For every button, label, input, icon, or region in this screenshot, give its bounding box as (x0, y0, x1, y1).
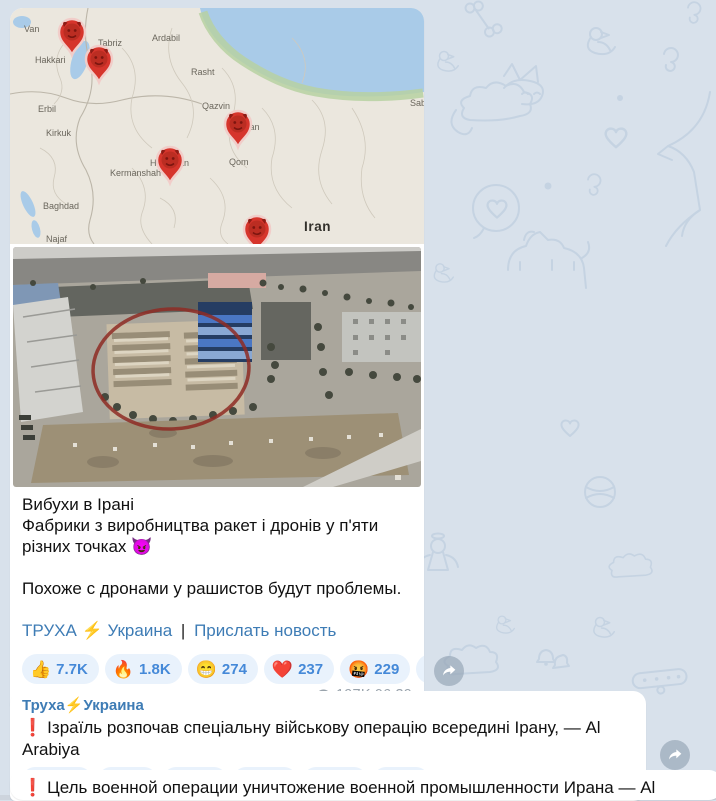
svg-text:Baghdad: Baghdad (43, 201, 79, 211)
doodle-collar (632, 668, 688, 696)
svg-text:Kirkuk: Kirkuk (46, 128, 72, 138)
svg-text:Qom: Qom (229, 157, 249, 167)
doodle-swirl (588, 174, 601, 195)
fire-icon: 🔥 (113, 661, 134, 678)
grin-icon: 😁 (196, 661, 217, 678)
share-button[interactable] (434, 656, 464, 686)
reaction-grin[interactable]: 😁 274 (188, 654, 258, 684)
doodle-swirl (688, 2, 701, 23)
message-line: Фабрики з виробництва ракет і дронів у п… (22, 515, 412, 557)
message-1-text: Вибухи в Ірані Фабрики з виробництва рак… (10, 487, 424, 647)
sender-name[interactable]: Труха⚡Украина (22, 696, 634, 715)
svg-text:Kermanshah: Kermanshah (110, 168, 161, 178)
reactions-row: 👍 7.7K 🔥 1.8K 😁 274 ❤️ 237 🤬 229 😢 28 (22, 654, 412, 684)
share-button[interactable] (660, 740, 690, 770)
thumbs-up-icon: 👍 (30, 661, 51, 678)
blue-warehouse (198, 302, 252, 362)
svg-text:Van: Van (24, 24, 39, 34)
reaction-count: 7.7K (56, 661, 88, 678)
svg-text:Rasht: Rasht (191, 67, 215, 77)
channel-link[interactable]: ТРУХА ⚡ Украина (22, 621, 172, 640)
reaction-count: 229 (374, 661, 399, 678)
reaction-count: 274 (222, 661, 247, 678)
svg-text:Ardabil: Ardabil (152, 33, 180, 43)
doodle-bone (459, 0, 509, 40)
reaction-count: 1.8K (139, 661, 171, 678)
reaction-heart[interactable]: ❤️ 237 (264, 654, 334, 684)
channel-links-row: ТРУХА ⚡ Украина | Прислать новость (22, 620, 412, 641)
doodle-bird (588, 28, 615, 54)
doodle-bird (434, 264, 453, 282)
map-country-label: Iran (304, 219, 331, 234)
svg-text:Hakkari: Hakkari (35, 55, 66, 65)
message-bubble-3: ❗Цель военной операции уничтожение военн… (10, 770, 716, 800)
reaction-rage[interactable]: 🤬 229 (340, 654, 410, 684)
message-2-text: Труха⚡Украина ❗Ізраїль розпочав спеціаль… (10, 691, 646, 761)
red-exclamation-icon: ❗ (22, 718, 43, 737)
message-line: Похоже с дронами у рашистов будут пробле… (22, 578, 412, 599)
doodle-fox-on-cloud (451, 64, 543, 134)
message-bubble-1: Van Hakkari Tabriz Ardabil Rasht Erbil Q… (10, 8, 424, 710)
svg-text:Sabze: Sabze (410, 98, 424, 108)
pink-building (208, 273, 266, 288)
link-separator: | (181, 621, 185, 640)
doodle-bird (594, 618, 614, 638)
satellite-image-factory[interactable] (13, 247, 421, 487)
message-line: ❗Ізраїль розпочав спеціальну військову о… (22, 717, 634, 761)
doodle-bells (537, 650, 569, 668)
reaction-fire[interactable]: 🔥 1.8K (105, 654, 182, 684)
doodle-fox-tail (658, 92, 710, 246)
doodle-heart (561, 421, 578, 436)
map-pin-devil-5[interactable] (244, 216, 270, 244)
message-3-text: ❗Цель военной операции уничтожение военн… (10, 770, 716, 800)
map-image-iran[interactable]: Van Hakkari Tabriz Ardabil Rasht Erbil Q… (10, 8, 424, 244)
doodle-bird (497, 616, 515, 633)
doodle-swirl (664, 48, 678, 71)
doodle-dot (545, 183, 552, 190)
message-line: Вибухи в Ірані (22, 494, 412, 515)
svg-text:Erbil: Erbil (38, 104, 56, 114)
heart-icon: ❤️ (272, 661, 293, 678)
reaction-cry[interactable]: 😢 28 (416, 654, 424, 684)
doodle-dot (617, 95, 623, 101)
reaction-thumbs-up[interactable]: 👍 7.7K (22, 654, 99, 684)
doodle-bird (438, 52, 458, 72)
doodle-heart (606, 129, 627, 148)
reaction-count: 237 (298, 661, 323, 678)
red-exclamation-icon: ❗ (22, 778, 43, 797)
doodle-angel (418, 534, 458, 571)
doodle-cloud (609, 554, 652, 577)
share-arrow-icon (667, 747, 683, 763)
submit-news-link[interactable]: Прислать новость (194, 621, 336, 640)
doodle-heart-bubble (473, 185, 519, 238)
svg-text:Najaf: Najaf (46, 234, 68, 244)
doodle-ball (585, 477, 615, 507)
svg-text:Qazvin: Qazvin (202, 101, 230, 111)
share-arrow-icon (441, 663, 457, 679)
doodle-dog (508, 232, 589, 288)
rage-icon: 🤬 (348, 661, 369, 678)
